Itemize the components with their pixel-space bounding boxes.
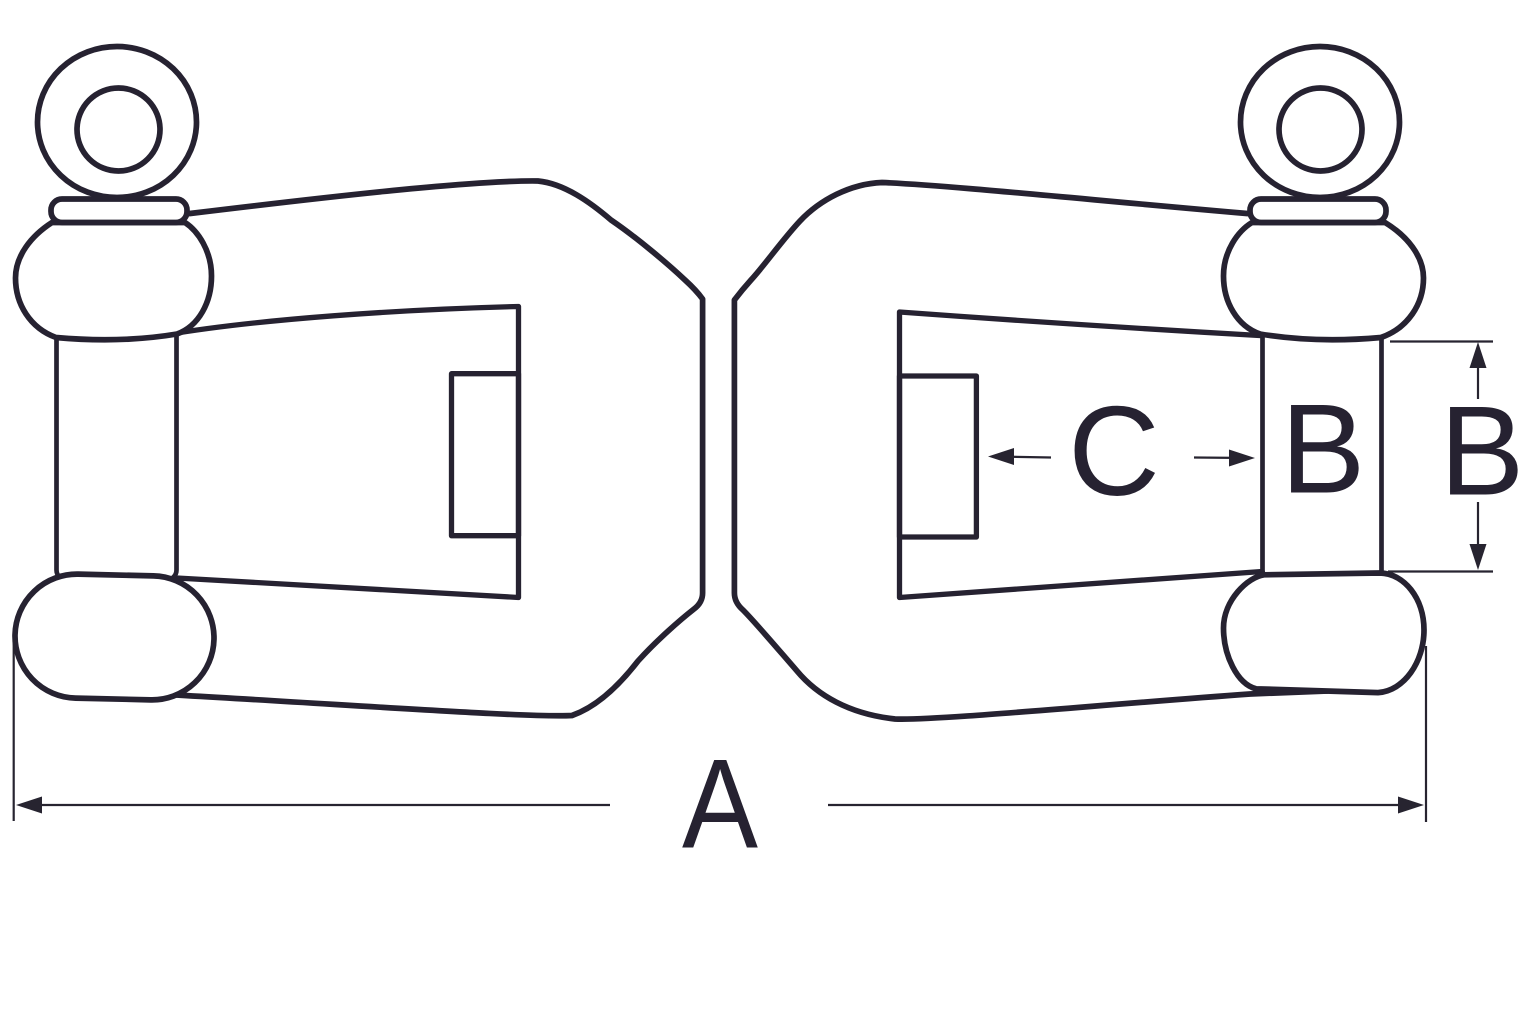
svg-text:C: C [1068, 380, 1160, 522]
svg-text:B: B [1440, 380, 1525, 522]
svg-text:A: A [682, 733, 758, 875]
svg-text:B: B [1281, 378, 1366, 520]
